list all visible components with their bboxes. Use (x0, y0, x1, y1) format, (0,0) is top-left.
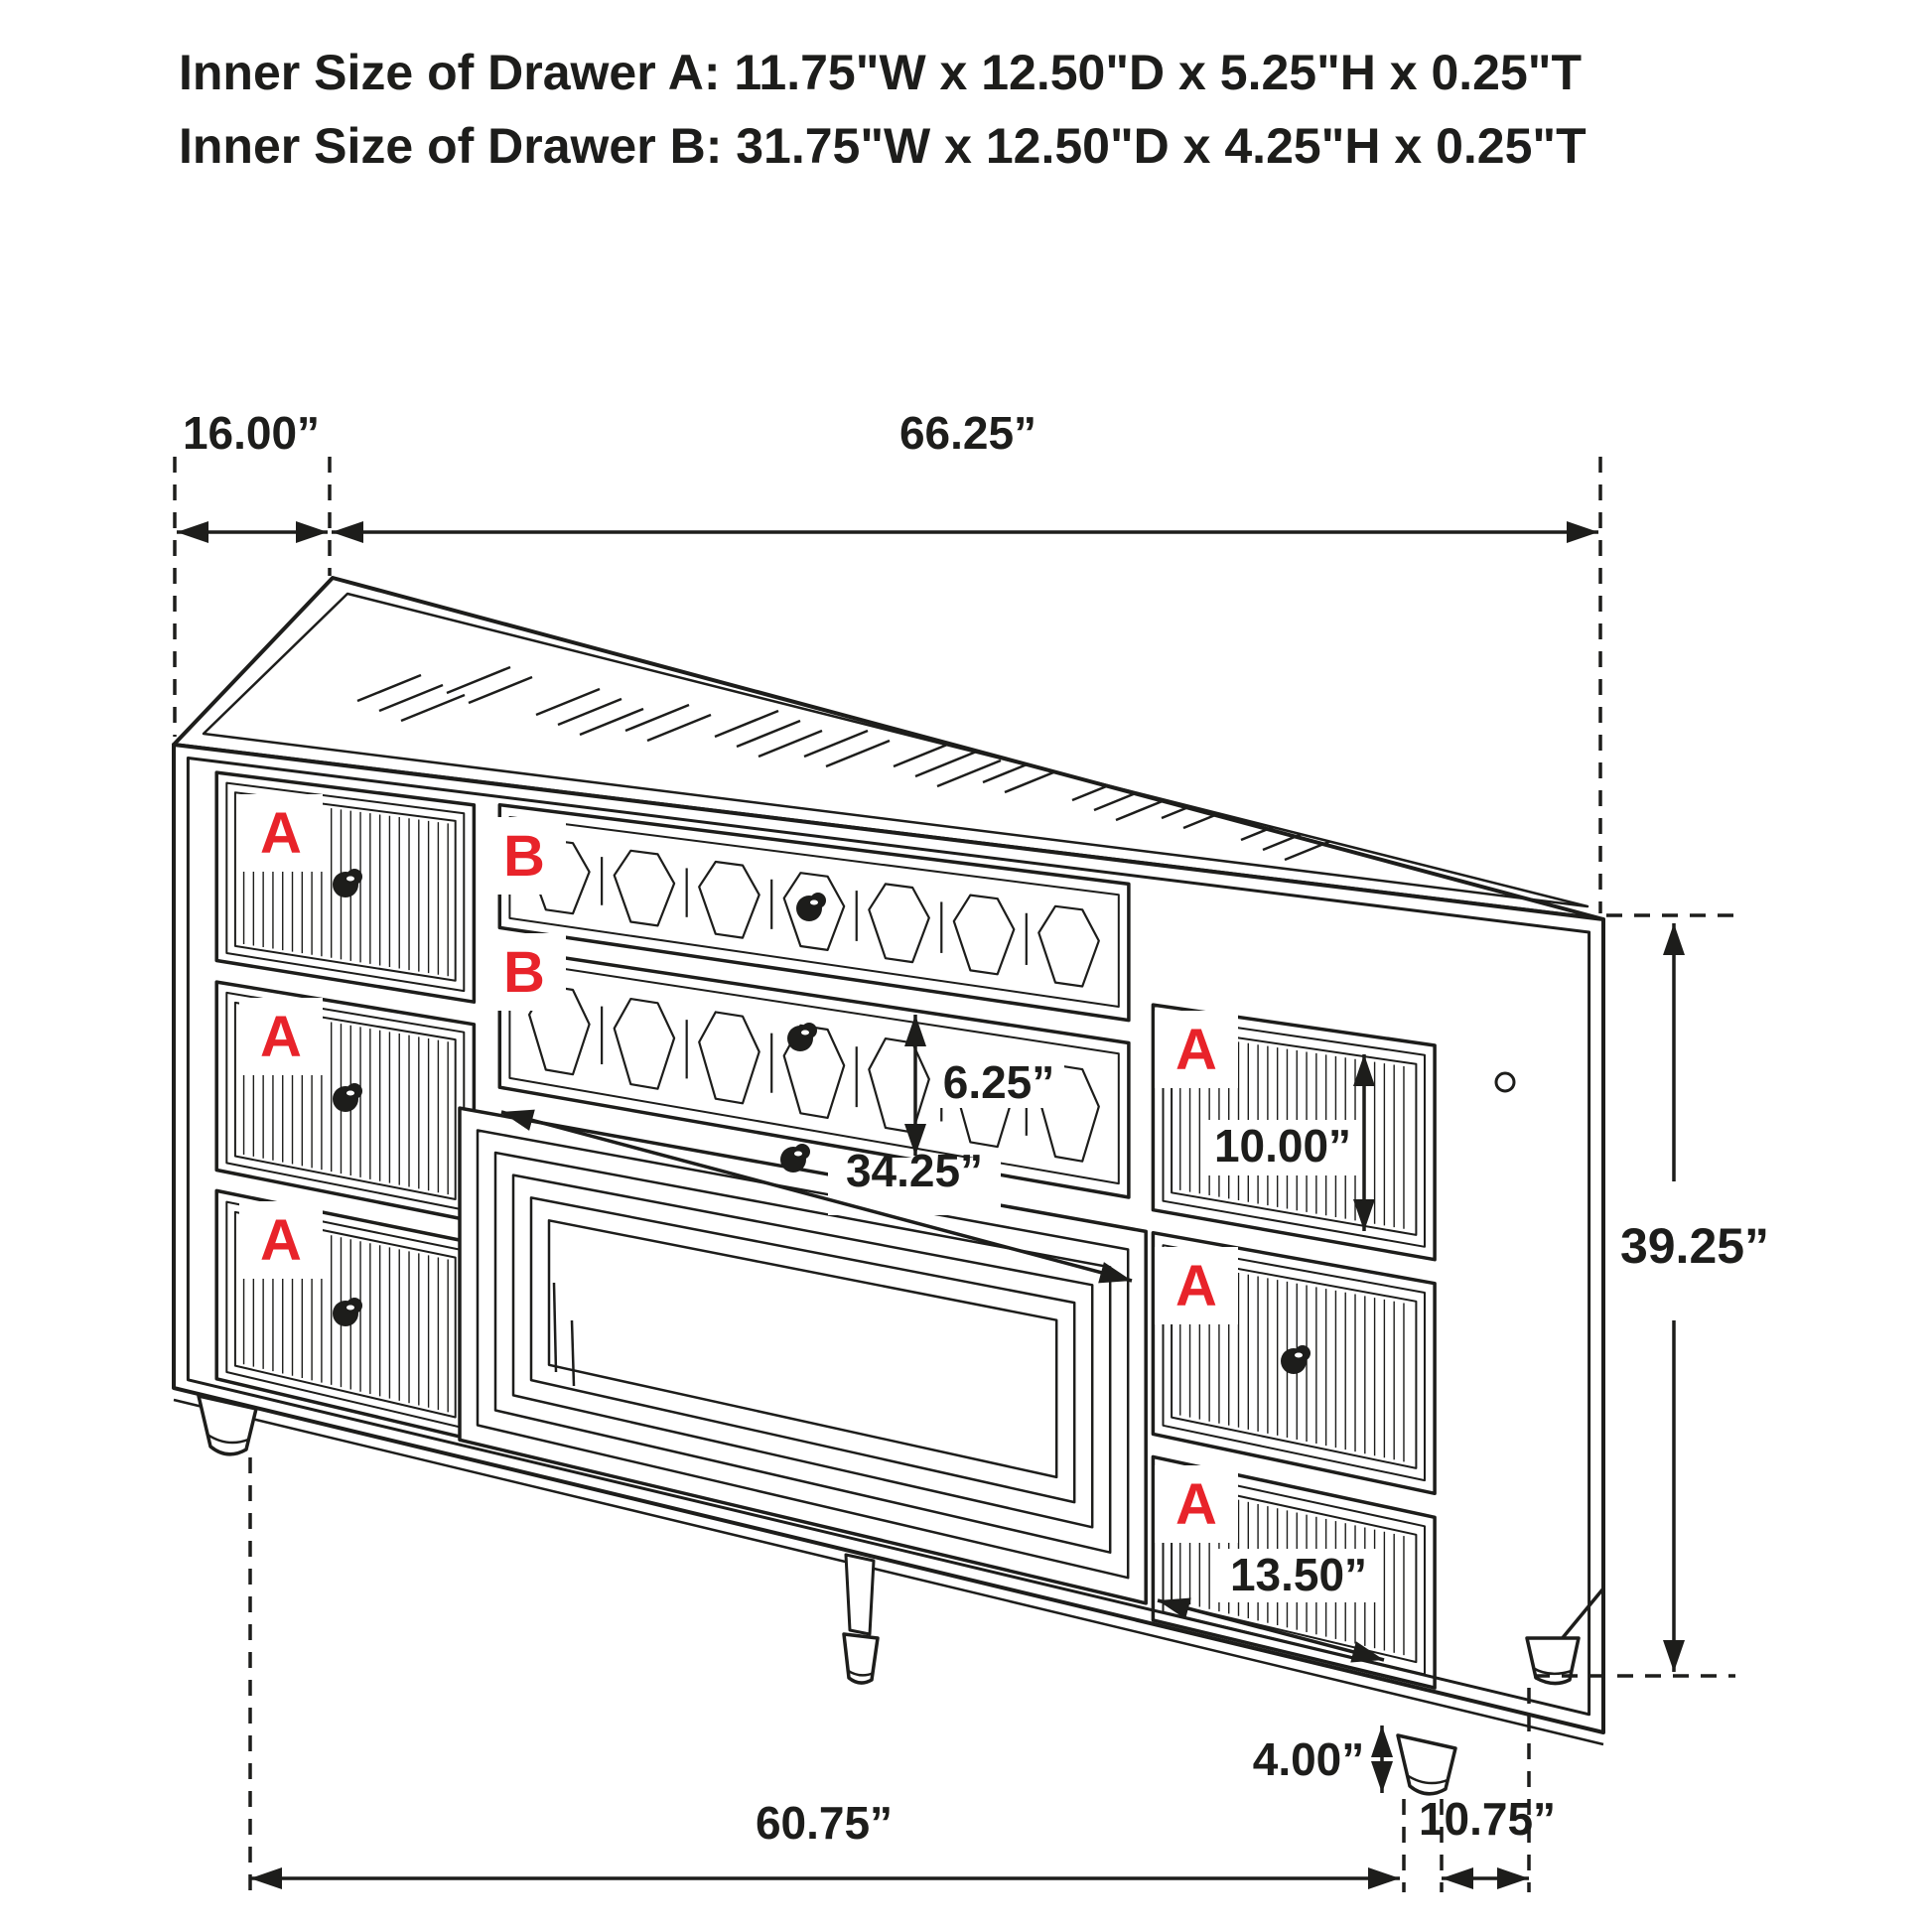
dim-top-width: 66.25” (899, 407, 1036, 459)
dim-right-top-drawer-height: 10.00” (1214, 1120, 1351, 1172)
drawer-a5-label: A (1175, 1254, 1217, 1318)
drawer-b2-label: B (503, 940, 545, 1005)
drawer-a6-label: A (1175, 1472, 1217, 1537)
drawer-b1-label: B (503, 824, 545, 889)
dim-overall-height: 39.25” (1620, 1218, 1769, 1274)
title-line-1: Inner Size of Drawer A: 11.75"W x 12.50"… (179, 45, 1582, 100)
drawer-a1-label: A (260, 801, 302, 866)
diagram-page: Inner Size of Drawer A: 11.75"W x 12.50"… (0, 0, 1932, 1932)
dim-top-depth: 16.00” (183, 407, 320, 459)
drawer-a3-label: A (260, 1208, 302, 1273)
title-line-2: Inner Size of Drawer B: 31.75"W x 12.50"… (179, 118, 1587, 174)
drawer-a2-label: A (260, 1005, 302, 1069)
dim-b-drawer-width: 34.25” (846, 1145, 983, 1196)
drawer-a4-label: A (1175, 1018, 1217, 1082)
furniture-dimension-diagram: Inner Size of Drawer A: 11.75"W x 12.50"… (0, 0, 1932, 1932)
dim-right-bottom-drawer-width: 13.50” (1230, 1549, 1367, 1600)
dim-foot-height: 4.00” (1253, 1733, 1365, 1785)
dim-b-drawer-height: 6.25” (943, 1056, 1055, 1108)
dim-bottom-depth: 10.75” (1419, 1793, 1556, 1845)
dim-bottom-width: 60.75” (756, 1797, 893, 1849)
